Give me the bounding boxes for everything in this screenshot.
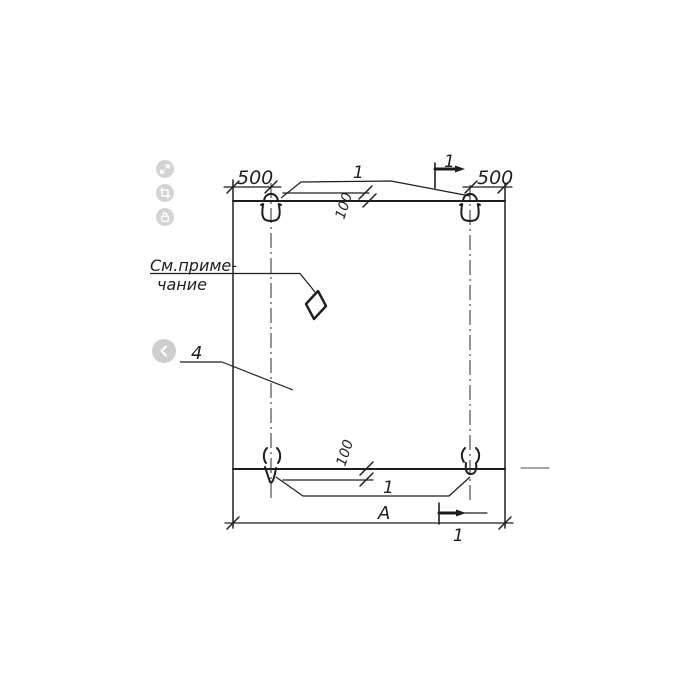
image-viewer: 500 500 1 1 100 См.приме- чание 4 100 1 …: [0, 0, 700, 700]
diamond-marker: [306, 291, 326, 319]
lock-button[interactable]: [156, 208, 174, 226]
dim-100-bottom-label: 100: [334, 438, 358, 468]
loop-callout-bottom-label: 1: [383, 478, 394, 498]
crop-icon: [159, 187, 171, 199]
lifting-loop-bottom-left: [264, 448, 280, 482]
dim-500-right-label: 500: [477, 167, 513, 189]
note-label-line2: чание: [157, 275, 207, 294]
loop-callout-top-label: 1: [353, 163, 364, 183]
chevron-left-icon: [157, 344, 171, 358]
leader-lines: [150, 181, 470, 496]
technical-drawing: 500 500 1 1 100 См.приме- чание 4 100 1 …: [0, 0, 700, 700]
loop-centerlines: [271, 183, 470, 500]
dim-width-label: А: [377, 503, 390, 524]
dim-100-top-label: 100: [333, 191, 357, 221]
expand-icon: [159, 163, 171, 175]
dim-500-left-label: 500: [237, 167, 273, 189]
note-label-line1: См.приме-: [150, 256, 237, 275]
fullscreen-button[interactable]: [156, 160, 174, 178]
lock-icon: [159, 211, 171, 223]
section-mark-bottom: [439, 503, 487, 524]
section-mark-bottom-label: 1: [453, 526, 464, 546]
panel-callout-label: 4: [191, 343, 202, 364]
crop-button[interactable]: [156, 184, 174, 202]
previous-image-button[interactable]: [152, 339, 176, 363]
section-mark-top-label: 1: [444, 152, 455, 172]
panel-outline: [233, 180, 549, 528]
